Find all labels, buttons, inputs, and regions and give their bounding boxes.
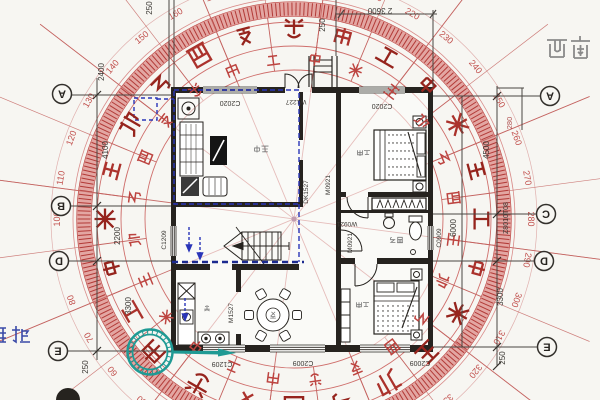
svg-text:M0921: M0921	[347, 233, 354, 253]
svg-text:B: B	[57, 200, 65, 212]
svg-text:C1209: C1209	[161, 230, 168, 250]
svg-text:E: E	[54, 345, 61, 357]
svg-text:C2020: C2020	[372, 102, 393, 109]
svg-text:6000: 6000	[449, 219, 458, 237]
svg-text:W1227: W1227	[285, 98, 306, 105]
svg-text:D: D	[55, 255, 63, 267]
svg-text:C2020: C2020	[220, 99, 241, 106]
svg-text:D: D	[540, 255, 548, 267]
svg-text:C1209: C1209	[212, 360, 233, 367]
svg-text:C0909: C0909	[436, 228, 443, 248]
svg-text:250: 250	[318, 18, 327, 32]
svg-text:DK1527: DK1527	[303, 180, 310, 204]
svg-text:250: 250	[145, 1, 154, 15]
svg-text:A: A	[546, 90, 554, 102]
svg-text:C2009: C2009	[410, 359, 431, 366]
svg-text:Z8010T08: Z8010T08	[503, 202, 510, 234]
svg-text:C2009: C2009	[293, 359, 314, 366]
svg-text:C: C	[542, 208, 550, 220]
svg-text:4500: 4500	[482, 141, 491, 159]
svg-text:280: 280	[505, 117, 514, 130]
svg-text:250: 250	[81, 360, 90, 374]
svg-text:2400: 2400	[97, 63, 106, 81]
svg-text:2 3600: 2 3600	[367, 6, 392, 15]
svg-text:3300: 3300	[496, 288, 505, 306]
svg-text:E: E	[543, 341, 550, 353]
svg-text:M0921: M0921	[325, 175, 332, 195]
svg-text:A: A	[58, 88, 66, 100]
svg-text:M1527: M1527	[228, 303, 235, 323]
svg-text:W0921: W0921	[336, 220, 357, 227]
svg-text:3300: 3300	[124, 297, 133, 315]
svg-text:4100: 4100	[101, 141, 110, 159]
svg-text:250: 250	[498, 351, 507, 365]
svg-text:2200: 2200	[113, 227, 122, 245]
